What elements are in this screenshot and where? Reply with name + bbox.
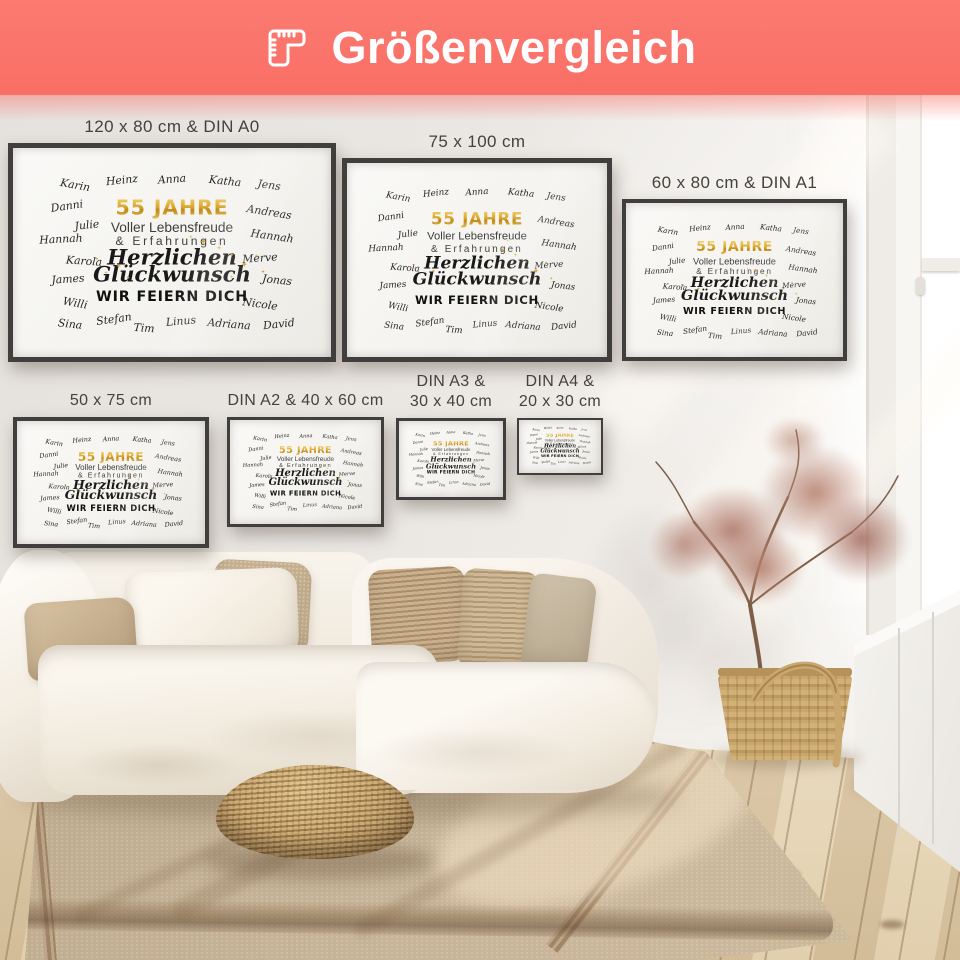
poster-120x80-din-a0: 120 x 80 cm & DIN A0 55 JAHREVoller Lebe… bbox=[8, 143, 336, 362]
poster-name: Hannah bbox=[157, 469, 183, 479]
poster-footer: WIR FEIERN DICH bbox=[96, 289, 248, 303]
poster-name: Anna bbox=[446, 431, 455, 435]
sparkle-icon: ✦ bbox=[753, 270, 758, 276]
poster-name: Karin bbox=[45, 439, 63, 448]
poster-name: David bbox=[582, 462, 590, 465]
poster-name: Heinz bbox=[689, 223, 711, 233]
sparkle-icon: ✦ bbox=[567, 443, 569, 445]
banner-title: Größenvergleich bbox=[331, 22, 696, 74]
sparkle-icon: + bbox=[274, 482, 276, 485]
poster-headline: 55 JAHRE bbox=[279, 446, 332, 456]
poster-name: Danni bbox=[50, 200, 84, 215]
poster-name: Jens bbox=[345, 436, 356, 443]
poster-name: Stefan bbox=[683, 324, 708, 335]
sparkle-icon: ✦ bbox=[436, 468, 437, 470]
poster-name: David bbox=[480, 482, 490, 486]
poster-name: James bbox=[249, 482, 265, 488]
poster-name: Stefan bbox=[415, 316, 445, 329]
sparkle-icon: + bbox=[422, 278, 425, 283]
poster-name: Jonas bbox=[164, 495, 182, 503]
sparkle-icon: + bbox=[506, 239, 509, 243]
poster-size-label: DIN A2 & 40 x 60 cm bbox=[227, 391, 383, 411]
poster-name: Merve bbox=[782, 280, 806, 289]
poster-name: Hannah bbox=[39, 234, 83, 247]
poster-name: Heinz bbox=[274, 434, 289, 441]
poster-name: Anna bbox=[725, 222, 745, 231]
sparkle-icon: + bbox=[462, 451, 463, 453]
poster-name: Sina bbox=[531, 462, 537, 465]
sparkle-icon: ✦ bbox=[318, 465, 321, 469]
sparkle-icon: + bbox=[569, 441, 570, 442]
poster-75x100: 75 x 100 cm 55 JAHREVoller Lebensfreude&… bbox=[342, 158, 612, 362]
sparkle-icon: + bbox=[145, 496, 147, 499]
poster-name: Sina bbox=[44, 521, 59, 529]
sparkle-icon: + bbox=[774, 297, 776, 301]
poster-name: Merve bbox=[152, 482, 173, 490]
poster-name: Jonas bbox=[348, 483, 362, 490]
poster-name: James bbox=[379, 280, 406, 291]
poster-name: Jonas bbox=[795, 296, 816, 305]
poster-name: Jonas bbox=[582, 452, 590, 455]
poster-din-a3-30x40: DIN A3 & 30 x 40 cm 55 JAHREVoller Leben… bbox=[396, 418, 506, 500]
rug-folded-edge bbox=[18, 897, 833, 940]
poster-headline: 55 JAHRE bbox=[431, 211, 523, 228]
poster-footer: WIR FEIERN DICH bbox=[67, 504, 156, 512]
sparkle-icon: + bbox=[208, 229, 211, 234]
poster-name: Anna bbox=[158, 173, 187, 186]
poster-name: Andreas bbox=[340, 448, 362, 456]
poster-name: David bbox=[551, 322, 578, 333]
sparkle-icon: ✦ bbox=[469, 459, 471, 461]
poster-50x75: 50 x 75 cm 55 JAHREVoller Lebensfreude& … bbox=[13, 417, 209, 548]
poster-frame: 55 JAHREVoller Lebensfreude& Erfahrungen… bbox=[396, 418, 506, 500]
poster-name: Karin bbox=[415, 433, 425, 438]
poster-name: Jens bbox=[581, 429, 587, 432]
poster-name: Willi bbox=[46, 508, 61, 517]
plant-foliage bbox=[752, 408, 837, 473]
poster-name: Katha bbox=[323, 434, 339, 441]
sparkle-icon: ✦ bbox=[127, 474, 131, 479]
poster-name: Nicole bbox=[534, 302, 564, 315]
poster-name: Heinz bbox=[423, 188, 450, 200]
poster-name: Nicole bbox=[473, 475, 485, 480]
sparkle-icon: + bbox=[469, 467, 470, 469]
sparkle-icon: ✦ bbox=[439, 282, 443, 286]
poster-subline-1: Voller Lebensfreude bbox=[693, 257, 776, 266]
plant-foliage bbox=[636, 498, 731, 593]
sparkle-icon: + bbox=[746, 268, 748, 272]
poster-name: Jens bbox=[792, 227, 809, 236]
poster-name: Hannah bbox=[250, 229, 294, 246]
poster-name: Karin bbox=[253, 436, 268, 443]
poster-name: Nicole bbox=[782, 313, 807, 324]
poster-headline: 55 JAHRE bbox=[433, 440, 469, 447]
poster-name: Merve bbox=[338, 472, 355, 478]
poster-name: Hannah bbox=[476, 451, 490, 456]
poster-name: Nicole bbox=[577, 457, 586, 461]
window-crossbar bbox=[922, 258, 960, 271]
poster-footer: WIR FEIERN DICH bbox=[683, 307, 786, 317]
poster-name: Karola bbox=[662, 282, 687, 291]
poster-name: Heinz bbox=[543, 428, 551, 432]
poster-name: Karola bbox=[417, 460, 429, 464]
poster-name: Karola bbox=[49, 484, 71, 492]
sparkle-icon: ✦ bbox=[431, 270, 436, 276]
poster-name: Julie bbox=[397, 230, 418, 241]
poster-name: Linus bbox=[472, 319, 497, 330]
poster-name: Hannah bbox=[788, 263, 818, 274]
sparkle-icon: ✦ bbox=[284, 484, 286, 487]
poster-name: Anna bbox=[103, 437, 120, 444]
sparkle-icon: + bbox=[456, 453, 457, 455]
poster-name: Merve bbox=[473, 459, 484, 463]
poster-name: Willi bbox=[660, 312, 678, 322]
poster-name: Danni bbox=[377, 212, 405, 224]
poster-name: Hannah bbox=[243, 463, 263, 469]
poster-name: Danni bbox=[39, 452, 59, 461]
sparkle-icon: ✦ bbox=[460, 454, 462, 457]
poster-size-label: 60 x 80 cm & DIN A1 bbox=[652, 172, 817, 193]
poster-name: Tim bbox=[439, 484, 446, 488]
poster-name: Tim bbox=[550, 463, 555, 466]
sparkle-icon: + bbox=[574, 452, 575, 453]
poster-name: Danni bbox=[652, 242, 675, 252]
sparkle-icon: ✦ bbox=[546, 449, 547, 451]
poster-name: Linus bbox=[107, 519, 125, 527]
poster-name: Hannah bbox=[579, 441, 590, 445]
sparkle-icon: ✦ bbox=[144, 483, 147, 486]
poster-footer: WIR FEIERN DICH bbox=[427, 472, 475, 477]
poster-name: David bbox=[164, 521, 183, 529]
sparkle-icon: ✦ bbox=[549, 452, 550, 453]
sparkle-icon: + bbox=[759, 263, 761, 267]
poster-name: James bbox=[52, 274, 86, 287]
poster-din-a4-20x30: DIN A4 & 20 x 30 cm 55 JAHREVoller Leben… bbox=[517, 418, 603, 475]
poster-din-a2-40x60: DIN A2 & 40 x 60 cm 55 JAHREVoller Leben… bbox=[227, 417, 384, 527]
sparkle-icon: + bbox=[132, 469, 134, 472]
poster-name: Willi bbox=[416, 475, 424, 480]
poster-name: Katha bbox=[463, 432, 474, 437]
wood-knot bbox=[880, 920, 904, 929]
poster-name: Andreas bbox=[246, 204, 292, 222]
corner-ruler-icon bbox=[263, 24, 311, 72]
poster-name: Adriana bbox=[758, 328, 788, 338]
sparkle-icon: + bbox=[465, 456, 466, 458]
sparkle-icon: + bbox=[689, 294, 691, 298]
poster-name: Jonas bbox=[262, 274, 293, 288]
poster-name: Katha bbox=[759, 223, 782, 233]
sparkle-icon: + bbox=[189, 235, 192, 240]
poster-name: Heinz bbox=[72, 437, 91, 445]
poster-name: Karola bbox=[66, 255, 103, 268]
poster-name: Karin bbox=[532, 429, 540, 433]
sparkle-icon: ✦ bbox=[696, 288, 700, 293]
sparkle-icon: + bbox=[564, 442, 565, 443]
sparkle-icon: ✦ bbox=[524, 261, 528, 266]
poster-name: Linus bbox=[730, 326, 751, 335]
basket-handle bbox=[718, 640, 858, 770]
poster-name: Hannah bbox=[541, 239, 577, 253]
sparkle-icon: ✦ bbox=[116, 263, 122, 270]
poster-name: Heinz bbox=[105, 174, 138, 188]
poster-name: Merve bbox=[242, 252, 278, 265]
poster-name: Danni bbox=[412, 441, 423, 446]
sparkle-icon: ✦ bbox=[574, 447, 575, 448]
poster-name: Tim bbox=[445, 326, 463, 336]
poster-frame: 55 JAHREVoller Lebensfreude& Erfahrungen… bbox=[8, 143, 336, 362]
poster-size-label: 50 x 75 cm bbox=[70, 391, 152, 411]
poster-name: Sina bbox=[252, 504, 264, 510]
sparkle-icon: ✦ bbox=[200, 238, 207, 247]
sparkle-icon: + bbox=[314, 464, 315, 467]
poster-name: Adriana bbox=[131, 520, 157, 529]
poster-frame: 55 JAHREVoller Lebensfreude& Erfahrungen… bbox=[342, 158, 612, 362]
poster-name: Adriana bbox=[462, 482, 476, 487]
poster-artwork: 55 JAHREVoller Lebensfreude& Erfahrungen… bbox=[232, 422, 379, 522]
poster-artwork: 55 JAHREVoller Lebensfreude& Erfahrungen… bbox=[401, 423, 501, 495]
poster-name: Hannah bbox=[33, 472, 59, 480]
sparkle-icon: + bbox=[121, 473, 123, 476]
poster-artwork: 55 JAHREVoller Lebensfreude& Erfahrungen… bbox=[19, 423, 203, 542]
poster-name: Julie bbox=[668, 256, 685, 265]
poster-headline: 55 JAHRE bbox=[115, 198, 228, 219]
poster-name: Anna bbox=[299, 434, 313, 440]
poster-frame: 55 JAHREVoller Lebensfreude& Erfahrungen… bbox=[622, 199, 847, 361]
poster-name: Sina bbox=[414, 482, 422, 486]
poster-name: Adriana bbox=[206, 318, 250, 333]
poster-name: Hannah bbox=[644, 267, 674, 276]
poster-name: Andreas bbox=[785, 245, 816, 257]
sparkle-icon: + bbox=[514, 253, 518, 259]
poster-name: Nicole bbox=[338, 494, 355, 501]
sparkle-icon: + bbox=[322, 461, 323, 464]
poster-name: Adriana bbox=[569, 462, 580, 466]
poster-name: Hannah bbox=[342, 461, 363, 469]
sparkle-icon: ✦ bbox=[332, 473, 334, 476]
poster-footer: WIR FEIERN DICH bbox=[270, 490, 341, 497]
poster-name: David bbox=[796, 328, 818, 338]
poster-subline-1: Voller Lebensfreude bbox=[111, 221, 233, 235]
poster-name: James bbox=[40, 495, 60, 503]
poster-name: Stefan bbox=[66, 517, 88, 526]
poster-name: Katha bbox=[209, 175, 242, 189]
poster-name: Willi bbox=[533, 457, 540, 461]
poster-name: Nicole bbox=[242, 297, 279, 313]
sparkle-icon: + bbox=[524, 282, 527, 287]
poster-name: David bbox=[348, 504, 363, 511]
poster-name: James bbox=[413, 467, 424, 471]
poster-name: Tim bbox=[287, 507, 297, 513]
poster-name: Merve bbox=[534, 260, 563, 271]
poster-name: James bbox=[530, 451, 538, 454]
poster-name: James bbox=[653, 296, 676, 305]
poster-name: Karola bbox=[390, 263, 420, 274]
poster-size-label: DIN A3 & 30 x 40 cm bbox=[410, 372, 492, 412]
poster-headline: 55 JAHRE bbox=[696, 241, 773, 255]
poster-footer: WIR FEIERN DICH bbox=[541, 455, 579, 459]
poster-name: Linus bbox=[449, 481, 459, 485]
poster-name: Stefan bbox=[427, 480, 439, 485]
poster-name: Julie bbox=[74, 219, 100, 232]
poster-name: Hannah bbox=[368, 243, 404, 254]
sparkle-icon: + bbox=[104, 272, 107, 278]
poster-name: Andreas bbox=[475, 442, 490, 448]
poster-name: David bbox=[262, 318, 295, 332]
sparkle-icon: ✦ bbox=[773, 281, 776, 285]
window-handle bbox=[916, 277, 925, 295]
sparkle-icon: ✦ bbox=[84, 496, 87, 499]
sparkle-icon: ✦ bbox=[229, 254, 234, 260]
poster-name: Katha bbox=[507, 189, 534, 201]
sparkle-icon: + bbox=[230, 276, 233, 282]
poster-name: Tim bbox=[133, 323, 155, 335]
poster-name: Adriana bbox=[322, 504, 343, 511]
poster-name: Danni bbox=[248, 446, 264, 453]
poster-60x80-din-a1: 60 x 80 cm & DIN A1 55 JAHREVoller Leben… bbox=[622, 199, 847, 361]
poster-name: Jens bbox=[161, 440, 175, 448]
sparkle-icon: ✦ bbox=[703, 298, 706, 302]
poster-name: Jens bbox=[546, 193, 566, 204]
poster-name: Katha bbox=[569, 428, 577, 432]
poster-name: Linus bbox=[303, 503, 317, 509]
poster-name: Andreas bbox=[537, 216, 575, 231]
poster-name: Andreas bbox=[154, 454, 181, 464]
poster-frame: 55 JAHREVoller Lebensfreude& Erfahrungen… bbox=[13, 417, 209, 548]
poster-name: Stefan bbox=[96, 312, 133, 328]
poster-name: Karin bbox=[385, 192, 411, 205]
poster-name: Anna bbox=[465, 187, 489, 197]
sparkle-icon: + bbox=[543, 451, 544, 452]
poster-footer: WIR FEIERN DICH bbox=[415, 295, 539, 307]
size-comparison-banner: Größenvergleich bbox=[0, 0, 960, 95]
poster-frame: 55 JAHREVoller Lebensfreude& Erfahrungen… bbox=[227, 417, 384, 527]
sparkle-icon: + bbox=[765, 274, 768, 279]
poster-name: Jens bbox=[478, 433, 486, 437]
poster-name: Tim bbox=[708, 332, 723, 340]
poster-name: Stefan bbox=[270, 501, 287, 508]
sparkle-icon: ✦ bbox=[433, 463, 435, 465]
poster-name: Tim bbox=[88, 524, 101, 531]
sparkle-icon: + bbox=[71, 494, 73, 497]
poster-name: Adriana bbox=[505, 322, 541, 334]
poster-artwork: 55 JAHREVoller Lebensfreude& Erfahrungen… bbox=[349, 165, 605, 355]
poster-name: Jonas bbox=[480, 467, 490, 471]
poster-name: Katha bbox=[133, 437, 152, 445]
poster-size-label: 75 x 100 cm bbox=[428, 131, 525, 152]
poster-size-label: DIN A4 & 20 x 30 cm bbox=[519, 372, 601, 412]
poster-name: Sina bbox=[57, 319, 82, 332]
sparkle-icon: + bbox=[333, 484, 335, 487]
poster-subline-1: Voller Lebensfreude bbox=[427, 232, 527, 243]
poster-name: Hannah bbox=[409, 453, 423, 457]
poster-artwork: 55 JAHREVoller Lebensfreude& Erfahrungen… bbox=[15, 150, 329, 355]
sparkle-icon: ✦ bbox=[126, 276, 131, 281]
poster-name: Willi bbox=[62, 296, 88, 311]
poster-name: Karin bbox=[59, 178, 91, 194]
product-mockup-image: Größenvergleich 120 x 80 cm & DIN A0 55 … bbox=[0, 0, 960, 960]
sparkle-icon: + bbox=[491, 244, 494, 248]
poster-artwork: 55 JAHREVoller Lebensfreude& Erfahrungen… bbox=[521, 422, 599, 471]
sparkle-icon: ✦ bbox=[78, 489, 81, 493]
poster-name: Hannah bbox=[527, 442, 538, 445]
poster-name: Stefan bbox=[541, 461, 550, 465]
poster-name: Sina bbox=[383, 322, 404, 333]
poster-name: Sina bbox=[657, 329, 674, 338]
poster-name: Jonas bbox=[550, 281, 575, 292]
poster-headline: 55 JAHRE bbox=[78, 451, 144, 463]
poster-artwork: 55 JAHREVoller Lebensfreude& Erfahrungen… bbox=[628, 205, 841, 355]
sparkle-icon: ✦ bbox=[500, 247, 506, 254]
poster-name: Anna bbox=[556, 428, 563, 431]
poster-frame: 55 JAHREVoller Lebensfreude& Erfahrungen… bbox=[517, 418, 603, 475]
poster-name: Nicole bbox=[152, 508, 173, 517]
poster-name: Jens bbox=[257, 179, 282, 193]
poster-name: Willi bbox=[254, 493, 266, 500]
poster-name: Karola bbox=[256, 473, 273, 479]
poster-name: Karin bbox=[658, 226, 679, 237]
poster-name: Linus bbox=[558, 461, 566, 464]
sparkle-icon: + bbox=[429, 466, 430, 468]
couch-right-front bbox=[356, 662, 656, 790]
greige-pillow bbox=[520, 572, 597, 674]
sparkle-icon: + bbox=[217, 245, 221, 253]
sparkle-icon: + bbox=[571, 445, 572, 447]
poster-size-label: 120 x 80 cm & DIN A0 bbox=[84, 116, 259, 137]
cabinet-seam bbox=[932, 612, 934, 844]
sparkle-icon: + bbox=[327, 468, 329, 472]
poster-name: Heinz bbox=[430, 432, 440, 436]
poster-name: Merve bbox=[577, 446, 586, 449]
sparkle-icon: ✦ bbox=[279, 477, 282, 480]
poster-name: Linus bbox=[166, 315, 197, 328]
poster-name: Andreas bbox=[578, 435, 590, 439]
sparkle-icon: + bbox=[137, 478, 140, 482]
poster-name: Willi bbox=[387, 301, 408, 313]
